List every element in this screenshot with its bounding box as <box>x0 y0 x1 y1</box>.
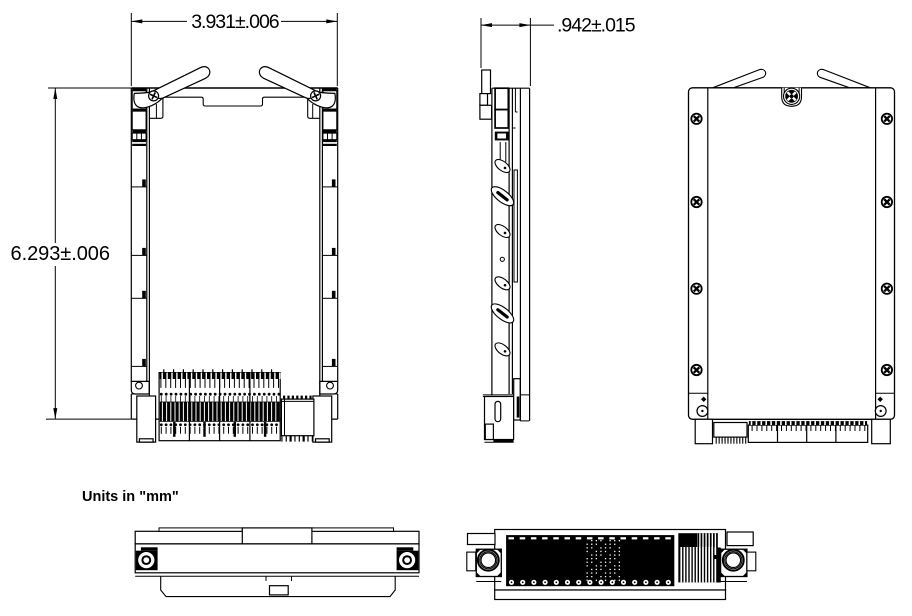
svg-text:3.931±.006: 3.931±.006 <box>191 11 279 33</box>
svg-text:.942±.015: .942±.015 <box>557 14 636 36</box>
svg-text:6.293±.006: 6.293±.006 <box>11 243 110 265</box>
svg-text:Units in "mm": Units in "mm" <box>82 489 179 505</box>
